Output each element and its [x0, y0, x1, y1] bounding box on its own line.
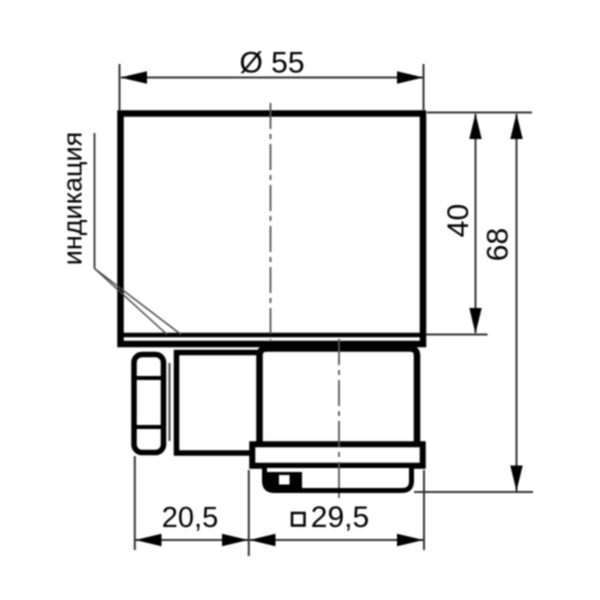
svg-text:20,5: 20,5 [162, 502, 218, 534]
svg-text:Ø 55: Ø 55 [239, 47, 304, 80]
svg-text:29,5: 29,5 [311, 501, 369, 534]
svg-text:68: 68 [482, 228, 515, 261]
svg-text:40: 40 [442, 204, 475, 237]
svg-text:индикация: индикация [58, 132, 88, 265]
